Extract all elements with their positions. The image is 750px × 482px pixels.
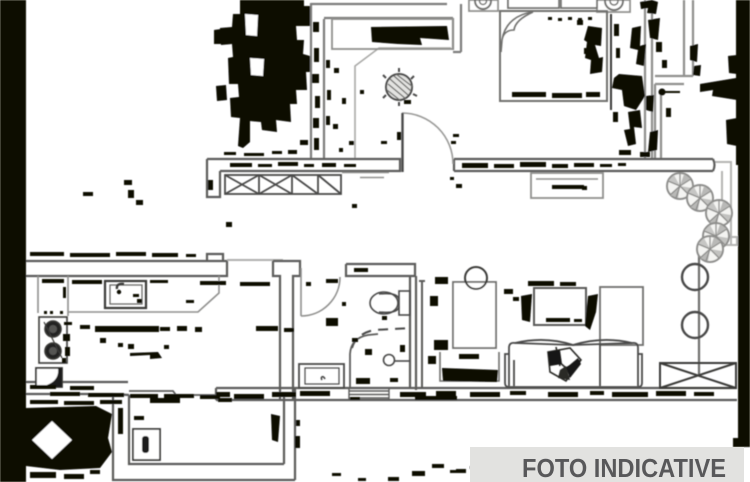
svg-text:FOTO INDICATIVE: FOTO INDICATIVE xyxy=(522,453,726,482)
